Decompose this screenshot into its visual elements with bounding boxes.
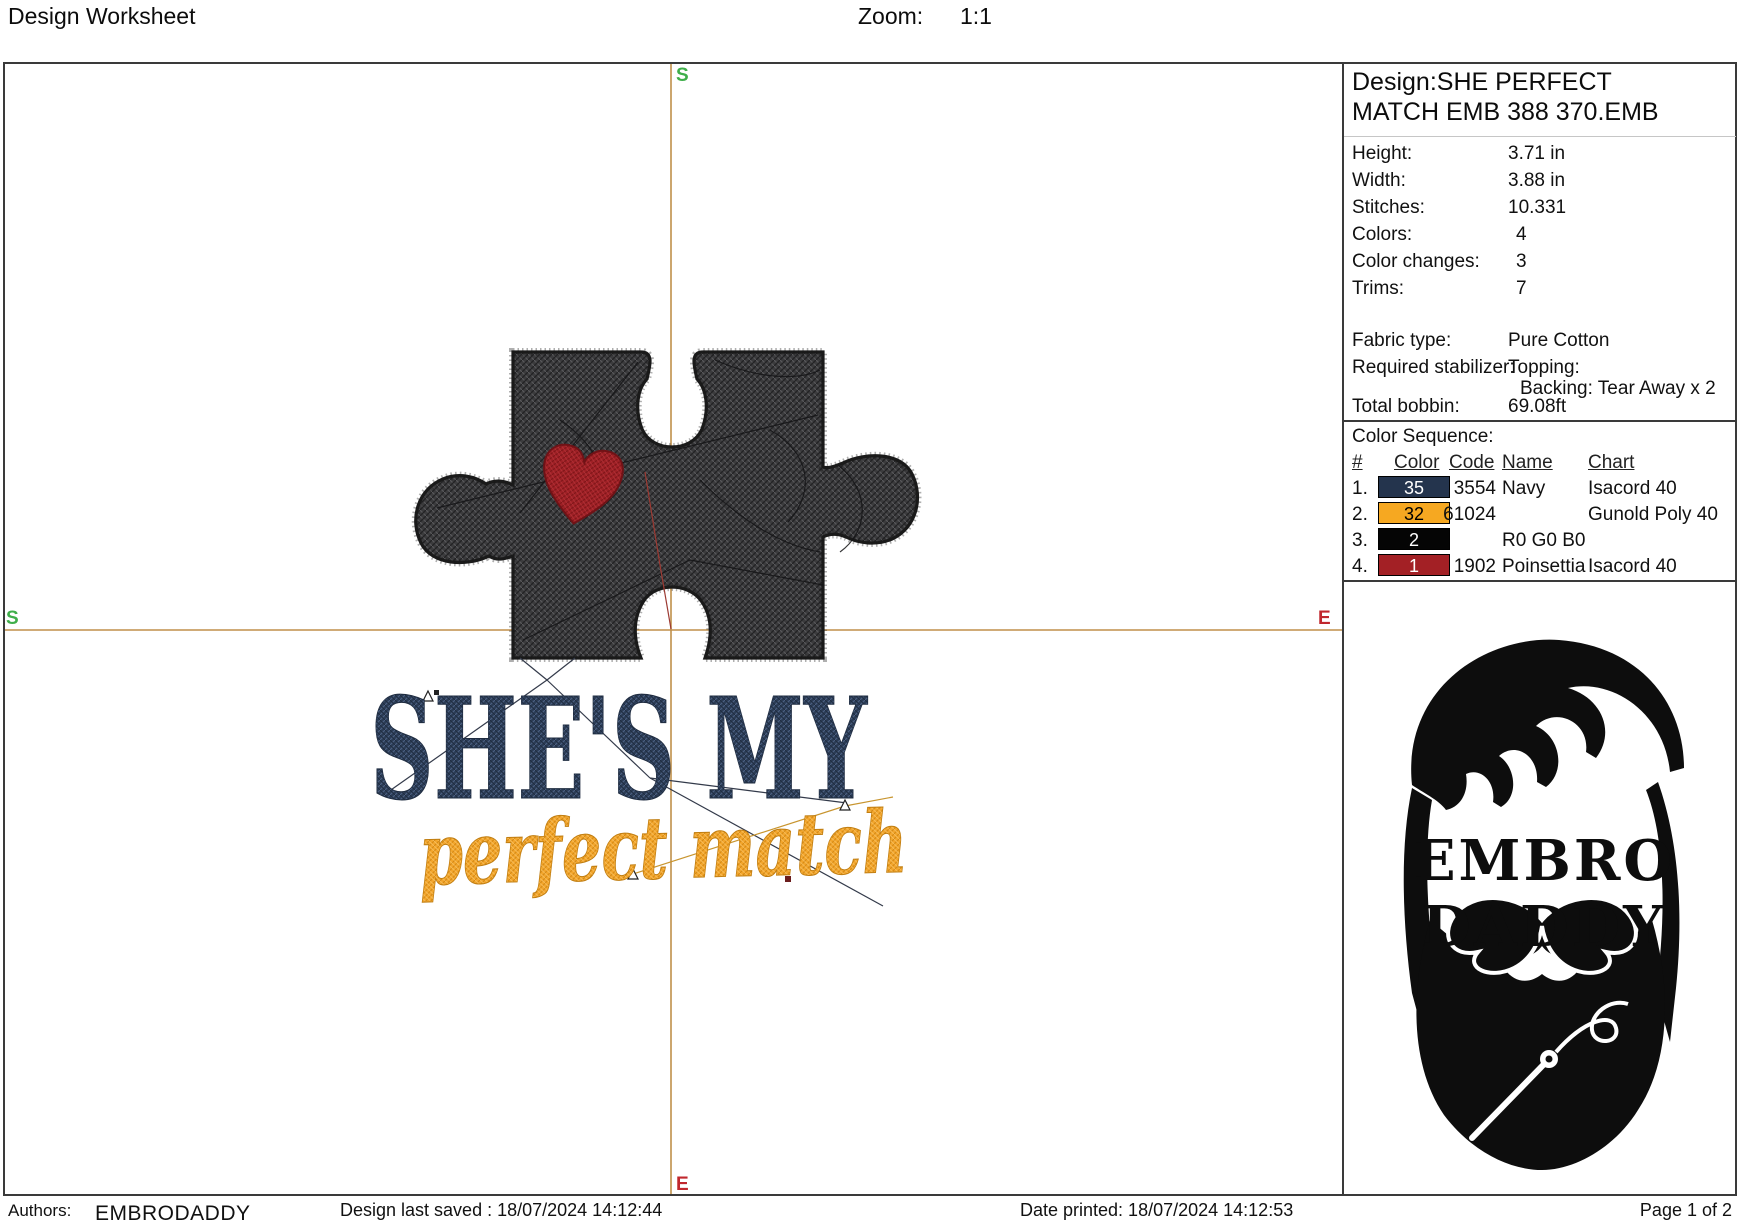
color-row-code: 1902: [1440, 556, 1496, 578]
col-header-num: #: [1352, 452, 1363, 474]
stabilizer-label: Required stabilizer:: [1352, 357, 1515, 379]
color-row-name: R0 G0 B0: [1502, 530, 1586, 552]
design-filename-line1: Design:SHE PERFECT: [1352, 67, 1730, 97]
date-printed: Date printed: 18/07/2024 14:12:53: [1020, 1200, 1293, 1221]
detail-row-trims: Trims: 7: [1352, 278, 1732, 302]
col-header-code: Code: [1449, 452, 1494, 474]
detail-label: Width:: [1352, 170, 1406, 192]
design-filename-line2: MATCH EMB 388 370.EMB: [1352, 97, 1730, 127]
detail-label: Colors:: [1352, 224, 1412, 246]
fabric-row: Fabric type: Pure Cotton: [1352, 330, 1732, 354]
detail-value: 3: [1516, 251, 1527, 273]
color-row-code: 3554: [1440, 478, 1496, 500]
design-info-panel: Design:SHE PERFECT MATCH EMB 388 370.EMB…: [1344, 62, 1736, 1196]
design-last-saved: Design last saved : 18/07/2024 14:12:44: [340, 1200, 662, 1221]
bobbin-value: 69.08ft: [1508, 396, 1566, 418]
stabilizer-value: Topping:: [1508, 357, 1580, 379]
col-header-name: Name: [1502, 452, 1553, 474]
zoom-value: 1:1: [960, 3, 992, 30]
detail-label: Trims:: [1352, 278, 1404, 300]
footer-bar: Authors: EMBRODADDY Design last saved : …: [0, 1196, 1740, 1229]
separator: [1344, 136, 1736, 137]
color-swatch: 2: [1378, 528, 1450, 550]
top-bar: Design Worksheet Zoom: 1:1: [0, 0, 1740, 62]
color-row-code: 61024: [1440, 504, 1496, 526]
color-row-chart: Isacord 40: [1588, 556, 1734, 578]
authors-value: EMBRODADDY: [95, 1202, 251, 1226]
detail-row-stitches: Stitches: 10.331: [1352, 197, 1732, 221]
color-row-num: 3.: [1352, 530, 1376, 552]
detail-row-height: Height: 3.71 in: [1352, 143, 1732, 167]
page-title: Design Worksheet: [8, 3, 196, 30]
detail-row-width: Width: 3.88 in: [1352, 170, 1732, 194]
fabric-label: Fabric type:: [1352, 330, 1451, 352]
detail-row-colors: Colors: 4: [1352, 224, 1732, 248]
separator: [1344, 420, 1736, 422]
color-row-num: 2.: [1352, 504, 1376, 526]
col-header-color: Color: [1394, 452, 1439, 474]
detail-label: Color changes:: [1352, 251, 1480, 273]
detail-value: 7: [1516, 278, 1527, 300]
color-row-num: 1.: [1352, 478, 1376, 500]
col-header-chart: Chart: [1588, 452, 1634, 474]
bobbin-label: Total bobbin:: [1352, 396, 1460, 418]
detail-row-color-changes: Color changes: 3: [1352, 251, 1732, 275]
separator: [1344, 580, 1736, 582]
detail-value: 3.88 in: [1508, 170, 1565, 192]
zoom-label: Zoom:: [858, 3, 923, 30]
authors-label: Authors:: [8, 1201, 71, 1221]
color-sequence-title: Color Sequence:: [1352, 426, 1494, 448]
page-number: Page 1 of 2: [1640, 1200, 1732, 1221]
logo-hair: [1411, 640, 1684, 810]
detail-value: 4: [1516, 224, 1527, 246]
logo-text-line1: EMBRO: [1413, 828, 1675, 894]
bobbin-row: Total bobbin: 69.08ft: [1352, 396, 1732, 420]
detail-value: 3.71 in: [1508, 143, 1565, 165]
embro-daddy-logo: EMBRO DADDY: [1344, 590, 1736, 1190]
color-row-chart: Isacord 40: [1588, 478, 1734, 500]
detail-label: Height:: [1352, 143, 1412, 165]
color-row-num: 4.: [1352, 556, 1376, 578]
detail-label: Stitches:: [1352, 197, 1425, 219]
logo-text-line2: DADDY: [1422, 894, 1666, 960]
color-row-chart: Gunold Poly 40: [1588, 504, 1734, 526]
color-row-name: Poinsettia: [1502, 556, 1586, 578]
detail-value: 10.331: [1508, 197, 1566, 219]
color-row-name: Navy: [1502, 478, 1586, 500]
fabric-value: Pure Cotton: [1508, 330, 1609, 352]
design-filename: Design:SHE PERFECT MATCH EMB 388 370.EMB: [1352, 67, 1730, 127]
